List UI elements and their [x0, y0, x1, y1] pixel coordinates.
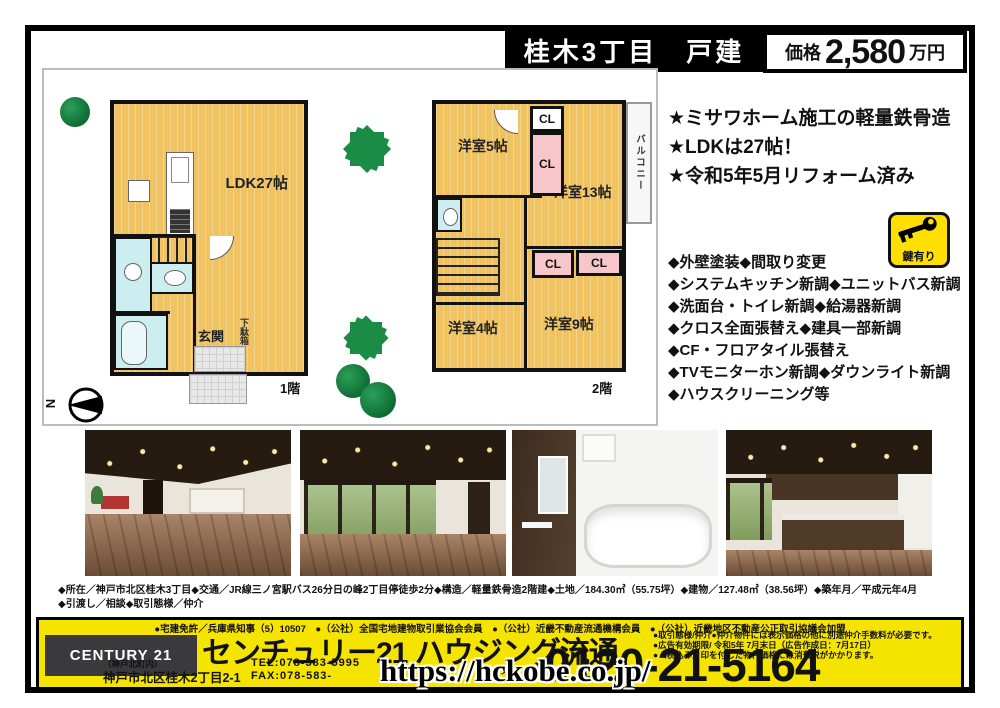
photo-bathtub [584, 504, 712, 568]
details-line: ◆所在／神戸市北区桂木3丁目◆交通／JR線三ノ宮駅バス26分日の峰2丁目停徒歩2… [58, 584, 958, 598]
photo-kitchen [726, 430, 932, 576]
photo-furniture [101, 496, 129, 509]
price-label: 価格 [785, 39, 821, 65]
tree-icon [360, 382, 396, 418]
photo-plant [91, 486, 103, 504]
room-label-ldk: LDK27帖 [225, 172, 288, 193]
floorplan-2f: 洋室5帖 洋室13帖 洋室4帖 洋室9帖 CL CL CL CL [432, 100, 626, 372]
closet-label: CL [545, 257, 561, 271]
bathtub-icon [121, 321, 147, 365]
photo-mirror [538, 456, 568, 514]
floor2-label: 2階 [592, 378, 612, 397]
tel-number: TEL:078-583-5995 [251, 657, 360, 670]
entrance-tile [194, 346, 246, 372]
floor1-label: 1階 [280, 378, 300, 397]
key-icon [893, 215, 945, 245]
highlight-item: ★LDKは27帖！ [668, 133, 968, 162]
washroom-area [114, 237, 152, 315]
photo-living-windows [300, 430, 506, 576]
photo-floor [300, 534, 506, 576]
photo-floor [726, 550, 932, 576]
interior-wall [524, 195, 527, 368]
tree-icon [60, 97, 90, 127]
photo-garden-window [726, 478, 772, 540]
closet-cl: CL [532, 250, 574, 278]
room-label-room4: 洋室4帖 [448, 318, 498, 338]
features-list: ◆外壁塗装◆間取り変更 ◆システムキッチン新調◆ユニットバス新調 ◆洗面台・トイ… [668, 252, 970, 406]
floorplan-1f: LDK27帖 玄関 下駄箱 [110, 100, 308, 376]
interior-wall [524, 246, 622, 249]
property-details: ◆所在／神戸市北区桂木3丁目◆交通／JR線三ノ宮駅バス26分日の峰2丁目停徒歩2… [58, 584, 958, 611]
photo-upper-cabinets [766, 474, 906, 500]
interior-wall [114, 311, 170, 314]
washbasin-icon [124, 263, 142, 281]
feature-item: ◆システムキッチン新調◆ユニットバス新調 [668, 274, 970, 296]
toilet-area-2f [436, 198, 462, 232]
photo-window [582, 434, 616, 462]
tree-icon [350, 132, 384, 166]
toilet-icon [164, 270, 186, 286]
photo-ceiling [85, 430, 291, 484]
compass-north-letter: N [43, 399, 58, 408]
price-value: 2,580 [825, 33, 905, 72]
tel-fax: TEL:078-583-5995 FAX:078-583- [251, 657, 360, 683]
photo-ceiling [726, 430, 932, 474]
feature-item: ◆CF・フロアタイル張替え [668, 340, 970, 362]
property-title: 桂木3丁目 戸建 [505, 28, 763, 72]
compass-icon: N [46, 384, 112, 426]
floorplan-panel: LDK27帖 玄関 下駄箱 1階 [42, 68, 658, 426]
price-box: 価格 2,580 万円 [763, 31, 967, 73]
door-arc [210, 236, 234, 260]
room-label-getabako: 下駄箱 [238, 318, 251, 345]
kitchen-unit-icon [166, 152, 194, 238]
balcony: バルコニー [626, 102, 652, 224]
stove-icon [170, 209, 190, 233]
highlight-item: ★令和5年5月リフォーム済み [668, 162, 968, 191]
interior-wall [114, 234, 196, 237]
feature-item: ◆TVモニターホン新調◆ダウンライト新調 [668, 362, 970, 384]
room-label-room9: 洋室9帖 [544, 314, 594, 334]
property-title-text: 桂木3丁目 戸建 [524, 32, 744, 69]
price-unit: 万円 [909, 39, 945, 65]
flyer-page: 桂木3丁目 戸建 価格 2,580 万円 LDK27帖 [0, 0, 1000, 708]
kitchen-counter-icon [128, 180, 150, 202]
closet-cl: CL [576, 250, 622, 276]
closet-cl: CL [530, 132, 564, 196]
photo-shelf [522, 522, 552, 528]
feature-item: ◆ハウスクリーニング等 [668, 384, 970, 406]
room-label-room5: 洋室5帖 [458, 136, 508, 156]
photo-door [468, 482, 490, 540]
closet-label: CL [539, 112, 555, 126]
fax-number: FAX:078-583- [251, 670, 360, 683]
highlights-list: ★ミサワホーム施工の軽量鉄骨造 ★LDKは27帖！ ★令和5年5月リフォーム済み [668, 104, 968, 191]
door-arc [494, 110, 518, 134]
photo-window [189, 488, 245, 514]
closet-cl: CL [530, 106, 564, 132]
highlight-item: ★ミサワホーム施工の軽量鉄骨造 [668, 104, 968, 133]
room-label-genkan: 玄関 [198, 326, 224, 345]
toilet-area [150, 262, 194, 294]
photo-floor [85, 514, 291, 576]
details-line: ◆引渡し／相談◆取引態様／仲介 [58, 598, 958, 612]
interior-wall [436, 302, 526, 305]
closet-label: CL [539, 157, 555, 171]
toilet-icon [443, 208, 458, 226]
entrance-porch [189, 374, 247, 404]
feature-item: ◆外壁塗装◆間取り変更 [668, 252, 970, 274]
photo-bathroom [512, 430, 718, 576]
photo-living-room [85, 430, 291, 576]
bathroom-area [114, 314, 168, 370]
tree-icon [350, 322, 382, 354]
feature-item: ◆クロス全面張替え◆建具一部新調 [668, 318, 970, 340]
kitchen-sink-icon [171, 157, 189, 183]
feature-item: ◆洗面台・トイレ新調◆給湯器新調 [668, 296, 970, 318]
stairs-icon [436, 238, 500, 296]
company-address: 神戸市北区桂木2丁目2-1 [103, 667, 241, 686]
watermark-url: https://hckobe.co.jp/ [380, 653, 650, 689]
closet-label: CL [591, 256, 607, 270]
photo-ceiling [300, 430, 506, 480]
balcony-label: バルコニー [632, 134, 646, 192]
